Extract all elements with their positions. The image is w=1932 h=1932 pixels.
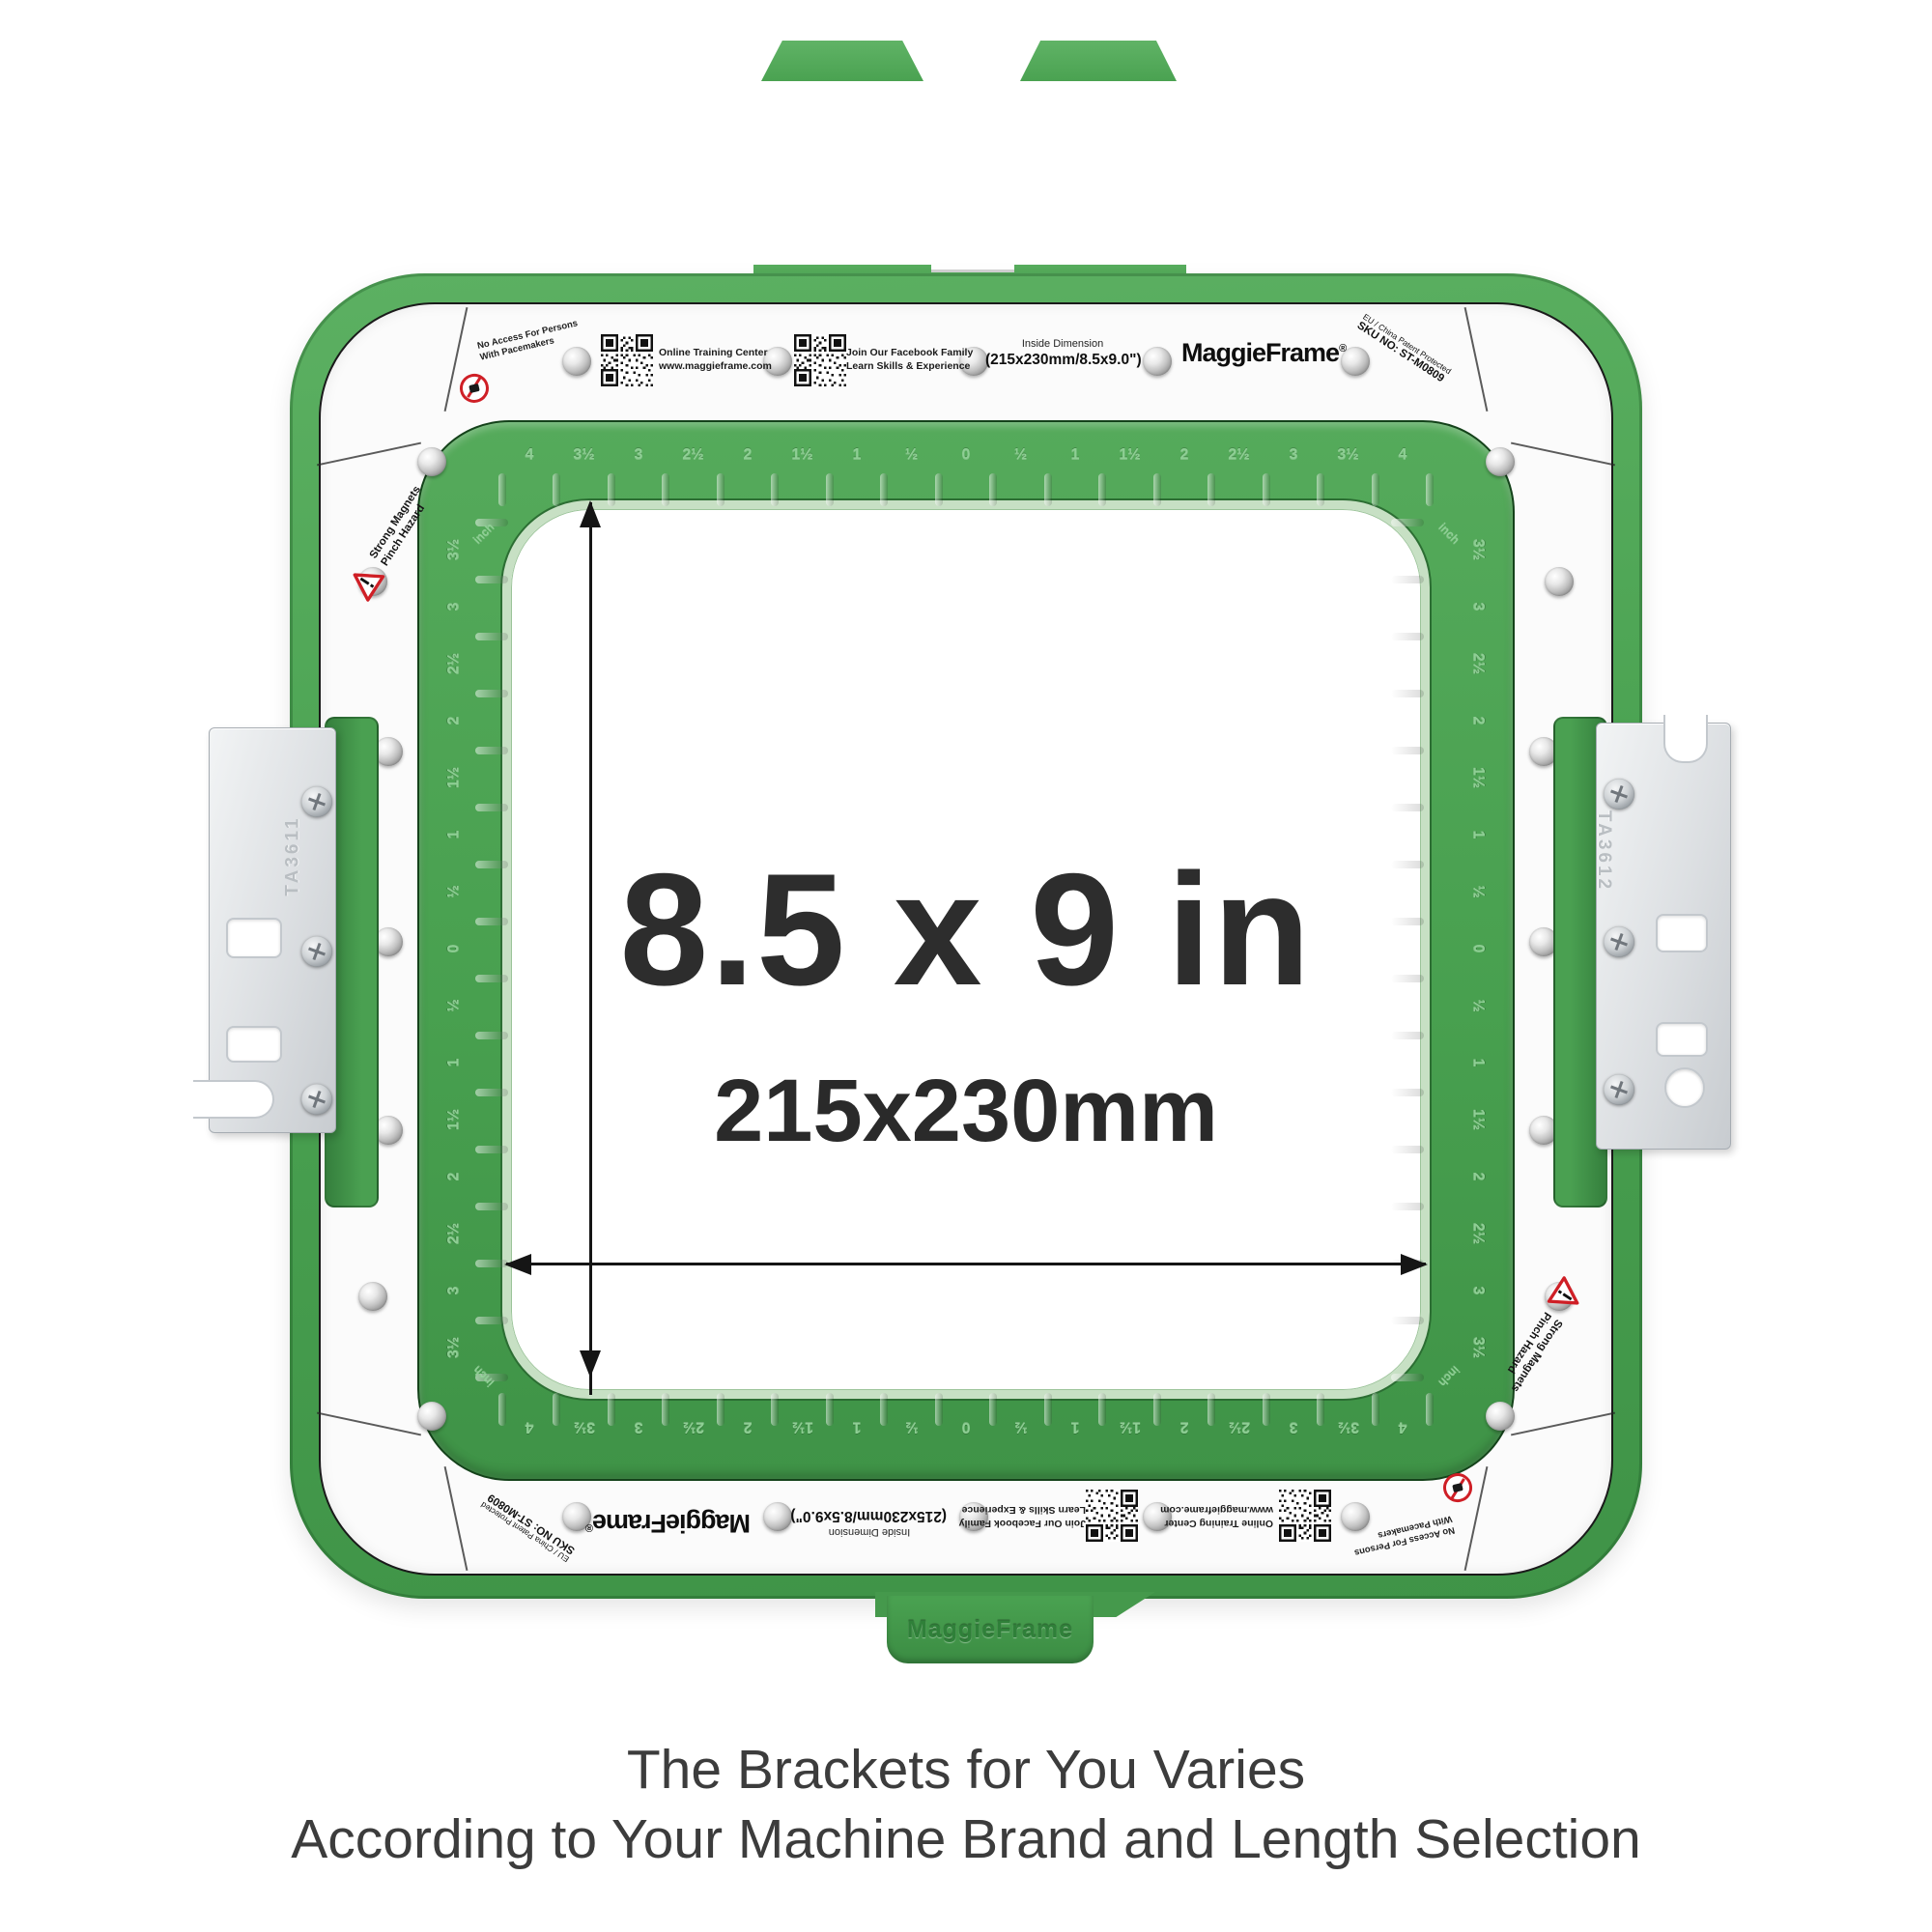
screw-icon (301, 786, 332, 817)
patent-text: EU / China Patent Protected (1361, 312, 1453, 377)
sku-text: SKU NO: ST-M0809 (484, 1491, 577, 1556)
arrowhead-right-icon (1401, 1254, 1428, 1275)
bracket-notch-right (1663, 715, 1708, 763)
facebook-text: Join Our Facebook Family Learn Skills & … (959, 1503, 1086, 1530)
qr-code-icon (794, 334, 846, 386)
embossed-brand: MaggieFrame (907, 1616, 1073, 1644)
qr-code-icon (1086, 1490, 1138, 1542)
training-center-text: Online Training Center www.maggieframe.c… (1160, 1503, 1273, 1530)
screw-icon (1604, 779, 1634, 810)
patent-text: EU / China Patent Protected (479, 1500, 571, 1565)
sku-text: SKU NO: ST-M0809 (1355, 320, 1448, 385)
rivet-icon (417, 1402, 446, 1431)
inside-dimension-title: Inside Dimension (985, 338, 1140, 350)
band-printed-content-bottom: No Access For Persons With Pacemakers On… (357, 1463, 1478, 1571)
facebook-line2: Learn Skills & Experience (959, 1503, 1086, 1517)
training-line2: www.maggieframe.com (1160, 1503, 1273, 1517)
hoop-top-tab-right (1020, 41, 1177, 81)
hoop-top-notch (931, 238, 1014, 272)
pacemaker-warning: No Access For Persons With Pacemakers (1344, 1461, 1482, 1558)
training-line1: Online Training Center (659, 346, 772, 359)
band-printed-content-top: No Access For Persons With Pacemakers On… (454, 305, 1575, 413)
bracket-slot (226, 1026, 282, 1063)
qr-code-icon (601, 334, 653, 386)
inside-dimension-label: Inside Dimension (215x230mm/8.5x9.0") (985, 338, 1140, 369)
brand-logo: MaggieFrame® (606, 1508, 751, 1538)
rivet-icon (1545, 567, 1574, 596)
facebook-line1: Join Our Facebook Family (959, 1517, 1086, 1530)
horizontal-dimension-arrow (506, 1263, 1426, 1265)
training-line1: Online Training Center (1160, 1517, 1273, 1530)
training-center-text: Online Training Center www.maggieframe.c… (659, 346, 772, 373)
caption-line2: According to Your Machine Brand and Leng… (0, 1808, 1932, 1870)
no-pacemaker-icon (457, 371, 492, 406)
registered-mark: ® (1339, 343, 1346, 355)
pacemaker-warning: No Access For Persons With Pacemakers (449, 317, 587, 414)
pacemaker-warning-text: No Access For Persons With Pacemakers (1350, 1512, 1456, 1557)
training-line2: www.maggieframe.com (659, 359, 772, 373)
brand-name: MaggieFrame (1181, 338, 1339, 367)
brand-name: MaggieFrame (593, 1509, 751, 1538)
arrowhead-up-icon (580, 500, 601, 527)
pacemaker-warning-text: No Access For Persons With Pacemakers (476, 318, 582, 363)
caption-line1: The Brackets for You Varies (0, 1739, 1932, 1801)
inside-dimension-title: Inside Dimension (792, 1526, 947, 1538)
hoop-bottom-tab: MaggieFrame (887, 1596, 1094, 1663)
size-label-inches: 8.5 x 9 in (0, 838, 1932, 1021)
inside-dimension-value: (215x230mm/8.5x9.0") (985, 352, 1140, 369)
sku-label: EU / China Patent Protected SKU NO: ST-M… (1355, 312, 1454, 386)
rivet-icon (358, 1282, 387, 1311)
facebook-line2: Learn Skills & Experience (846, 359, 973, 373)
facebook-text: Join Our Facebook Family Learn Skills & … (846, 346, 973, 373)
inside-dimension-value: (215x230mm/8.5x9.0") (792, 1507, 947, 1524)
facebook-line1: Join Our Facebook Family (846, 346, 973, 359)
arrowhead-left-icon (504, 1254, 531, 1275)
hoop-top-tab-left (761, 41, 923, 81)
inside-dimension-label: Inside Dimension (215x230mm/8.5x9.0") (792, 1507, 947, 1538)
product-dimension-diagram: 443½3½332½2½221½1½11½½00½½111½1½222½2½33… (0, 0, 1932, 1932)
size-label-mm: 215x230mm (0, 1061, 1932, 1162)
brand-logo: MaggieFrame® (1181, 338, 1326, 368)
bracket-slot (1656, 1022, 1708, 1057)
qr-code-icon (1279, 1490, 1331, 1542)
no-pacemaker-icon (1440, 1470, 1475, 1505)
registered-mark: ® (586, 1521, 593, 1533)
sku-label: EU / China Patent Protected SKU NO: ST-M… (479, 1491, 578, 1565)
arrowhead-down-icon (580, 1350, 601, 1378)
rivet-icon (1486, 447, 1515, 476)
